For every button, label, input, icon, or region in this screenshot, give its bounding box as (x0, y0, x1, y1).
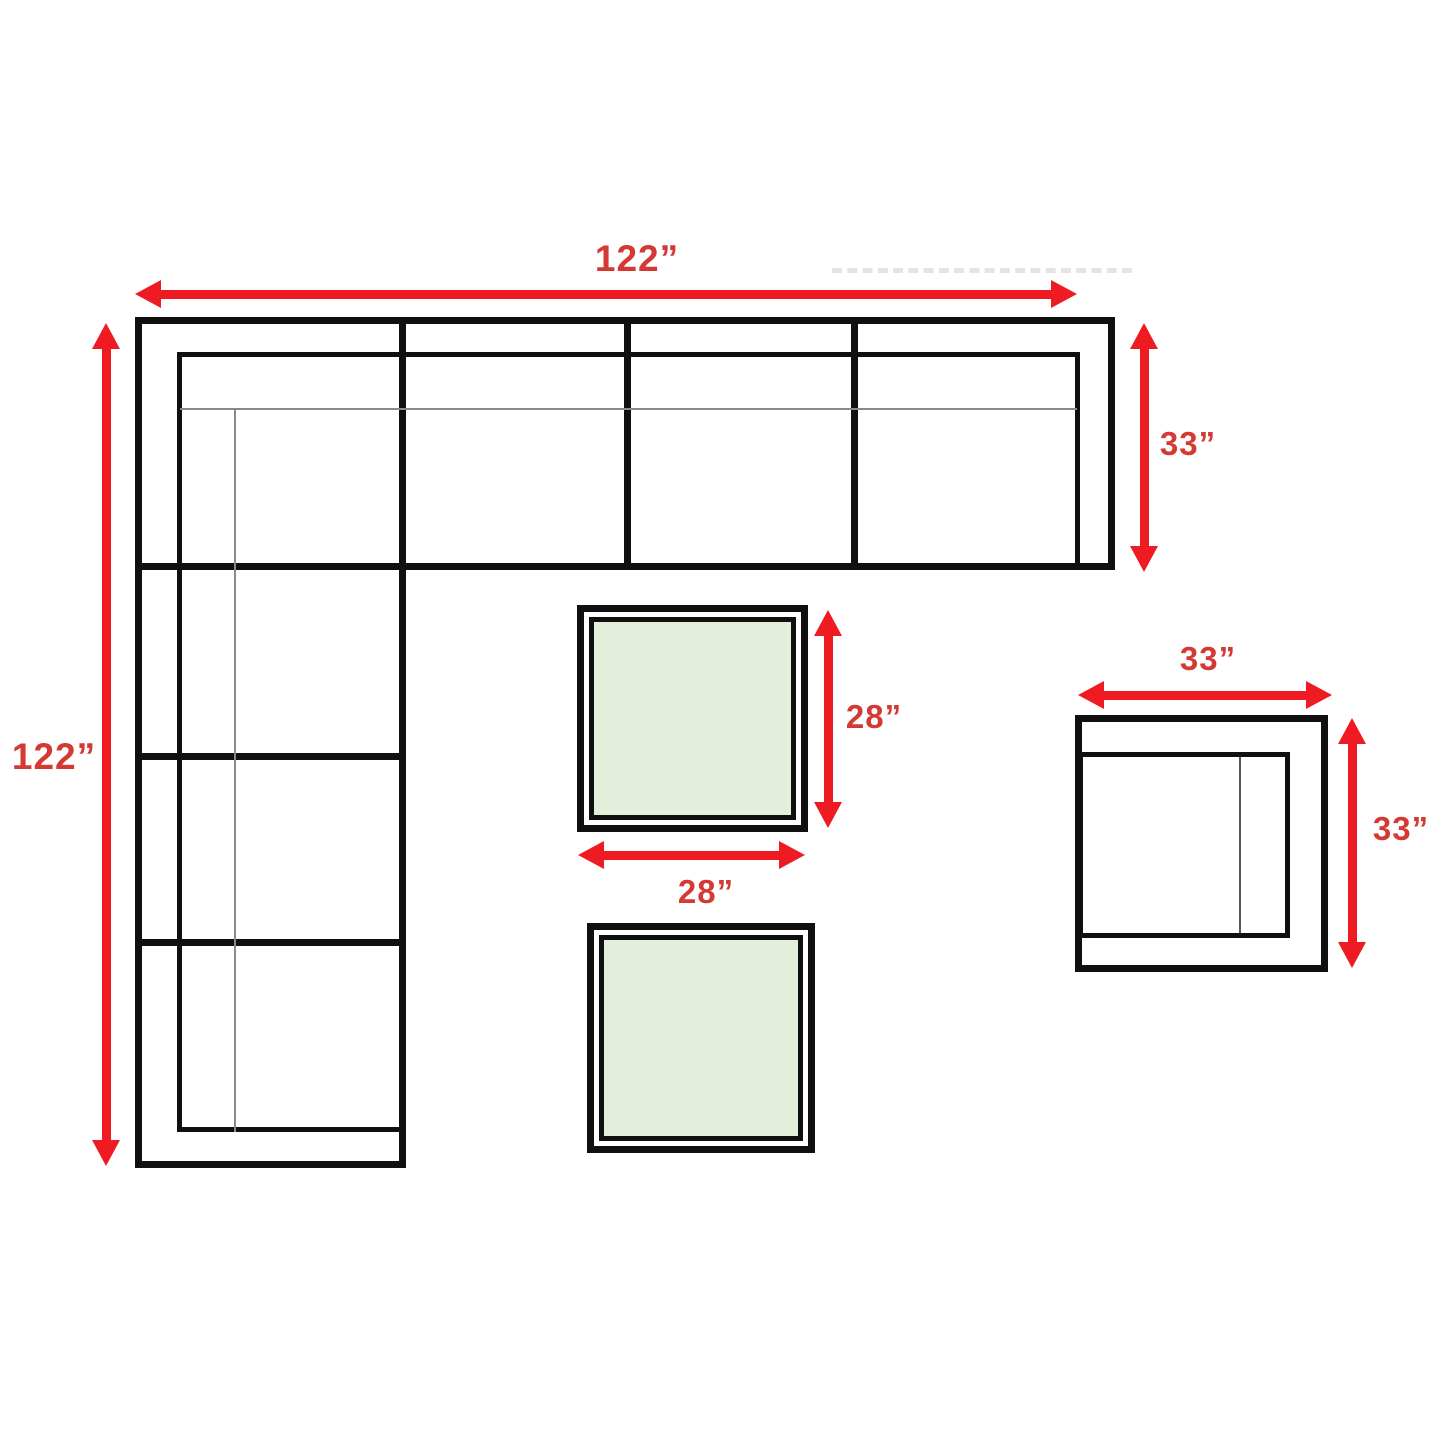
chair-depth-arrow (1348, 744, 1357, 942)
armchair-seat (1078, 752, 1290, 938)
sofa-outer-right-edge (1108, 317, 1115, 570)
table-depth-arrow (824, 636, 833, 802)
sofa-cushion-edge-line (234, 408, 236, 1132)
coffee-table-2 (587, 923, 815, 1153)
sofa-outer-bottom-edge (135, 1161, 406, 1168)
sofa-armrest-inner-line (1075, 352, 1080, 570)
sofa-divider-line (135, 753, 406, 760)
chair-depth-label: 33” (1373, 810, 1429, 848)
table-depth-label: 28” (846, 698, 902, 736)
sofa-width-label: 122” (595, 238, 679, 280)
table-width-arrow (604, 851, 779, 860)
sofa-divider-line (135, 939, 406, 946)
sofa-width-arrow (161, 290, 1051, 299)
sofa-left-column-right-edge (399, 317, 406, 1168)
table-width-label: 28” (678, 873, 734, 911)
sofa-depth-label: 33” (1160, 425, 1216, 463)
sofa-depth-arrow (1140, 349, 1149, 546)
sofa-cushion-edge-line (180, 408, 1077, 410)
sofa-backrest-inner-line (177, 352, 1080, 357)
chair-width-label: 33” (1180, 640, 1236, 678)
coffee-table-1 (577, 605, 808, 832)
watermark-artifact (832, 268, 1132, 273)
sofa-backrest-inner-line (177, 352, 182, 1132)
sofa-armrest-inner-line (177, 1127, 406, 1132)
coffee-table-1-top (589, 617, 796, 820)
dimension-diagram-canvas: 122” 122” 33” 28” 28” 33” 33” (0, 0, 1445, 1445)
coffee-table-2-top (599, 935, 803, 1141)
armchair-cushion-line (1239, 757, 1241, 933)
sofa-outer-left-edge (135, 317, 142, 1168)
sofa-height-label: 122” (12, 736, 96, 778)
sofa-height-arrow (102, 349, 111, 1140)
chair-width-arrow (1104, 691, 1306, 700)
